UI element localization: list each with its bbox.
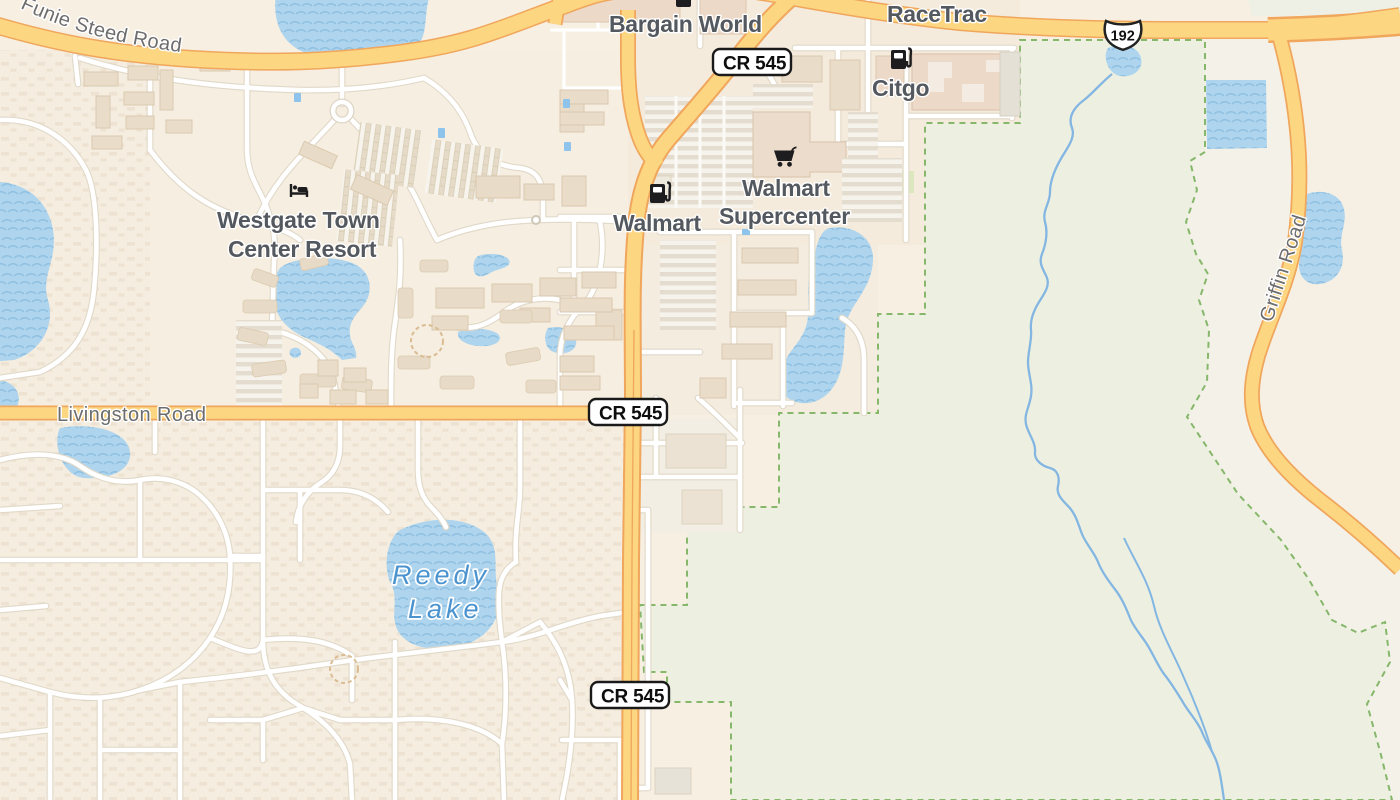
svg-text:CR 545: CR 545 bbox=[601, 687, 665, 708]
svg-text:Walmart: Walmart bbox=[613, 210, 701, 236]
svg-text:Livingston Road: Livingston Road bbox=[57, 404, 206, 426]
svg-text:CR 545: CR 545 bbox=[599, 404, 663, 425]
svg-text:Westgate Town: Westgate Town bbox=[217, 207, 380, 233]
svg-text:Lake: Lake bbox=[408, 594, 483, 624]
svg-text:Center Resort: Center Resort bbox=[228, 236, 377, 262]
svg-text:Walmart: Walmart bbox=[742, 175, 830, 201]
svg-text:RaceTrac: RaceTrac bbox=[887, 1, 987, 27]
svg-text:Reedy: Reedy bbox=[392, 560, 490, 590]
svg-text:Supercenter: Supercenter bbox=[719, 203, 850, 229]
svg-text:Bargain World: Bargain World bbox=[609, 11, 762, 37]
svg-text:192: 192 bbox=[1111, 29, 1135, 45]
svg-text:Citgo: Citgo bbox=[872, 75, 930, 101]
svg-text:CR 545: CR 545 bbox=[723, 54, 787, 75]
